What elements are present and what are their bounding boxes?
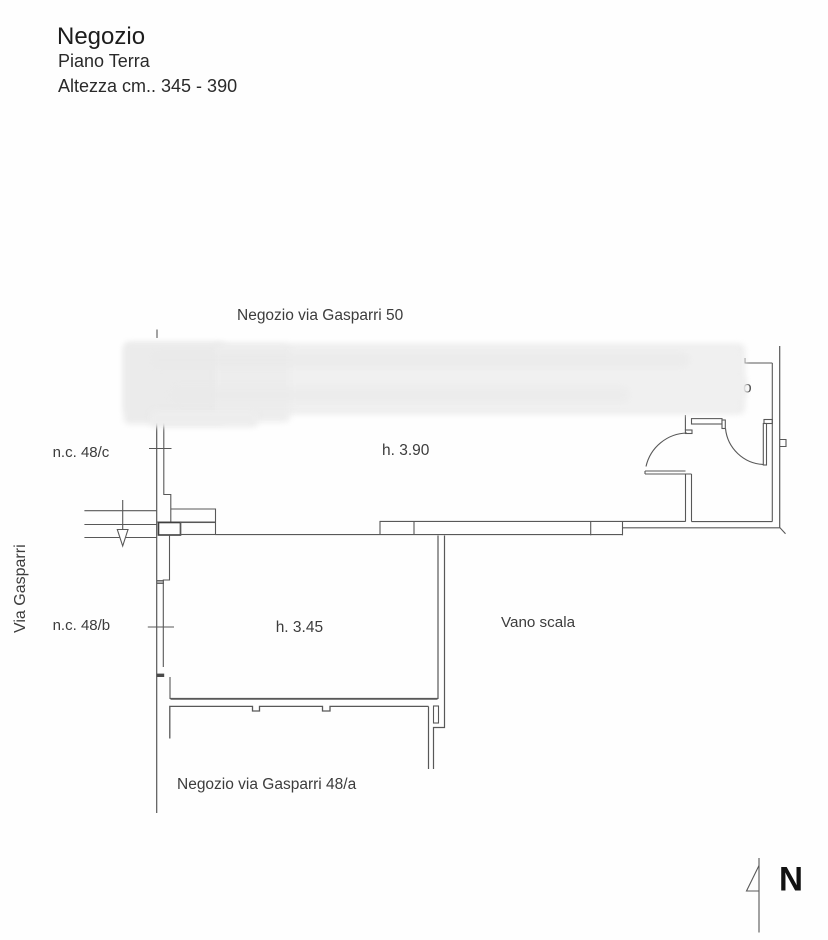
svg-text:Negozio: Negozio — [57, 23, 145, 50]
svg-text:Negozio via Gasparri 50: Negozio via Gasparri 50 — [237, 307, 404, 324]
svg-text:N: N — [779, 861, 803, 899]
svg-text:n.c. 48/c: n.c. 48/c — [53, 444, 110, 461]
svg-text:Vano scala: Vano scala — [501, 614, 576, 631]
svg-text:Negozio via Gasparri 48/a: Negozio via Gasparri 48/a — [177, 776, 357, 793]
svg-text:h. 3.45: h. 3.45 — [276, 619, 323, 636]
svg-text:Piano Terra: Piano Terra — [58, 51, 151, 71]
svg-text:Via Gasparri: Via Gasparri — [12, 544, 29, 633]
svg-text:h. 3.90: h. 3.90 — [382, 442, 430, 459]
svg-text:n.c. 48/b: n.c. 48/b — [53, 617, 111, 634]
svg-text:Altezza cm.. 345 - 390: Altezza cm.. 345 - 390 — [58, 76, 237, 96]
